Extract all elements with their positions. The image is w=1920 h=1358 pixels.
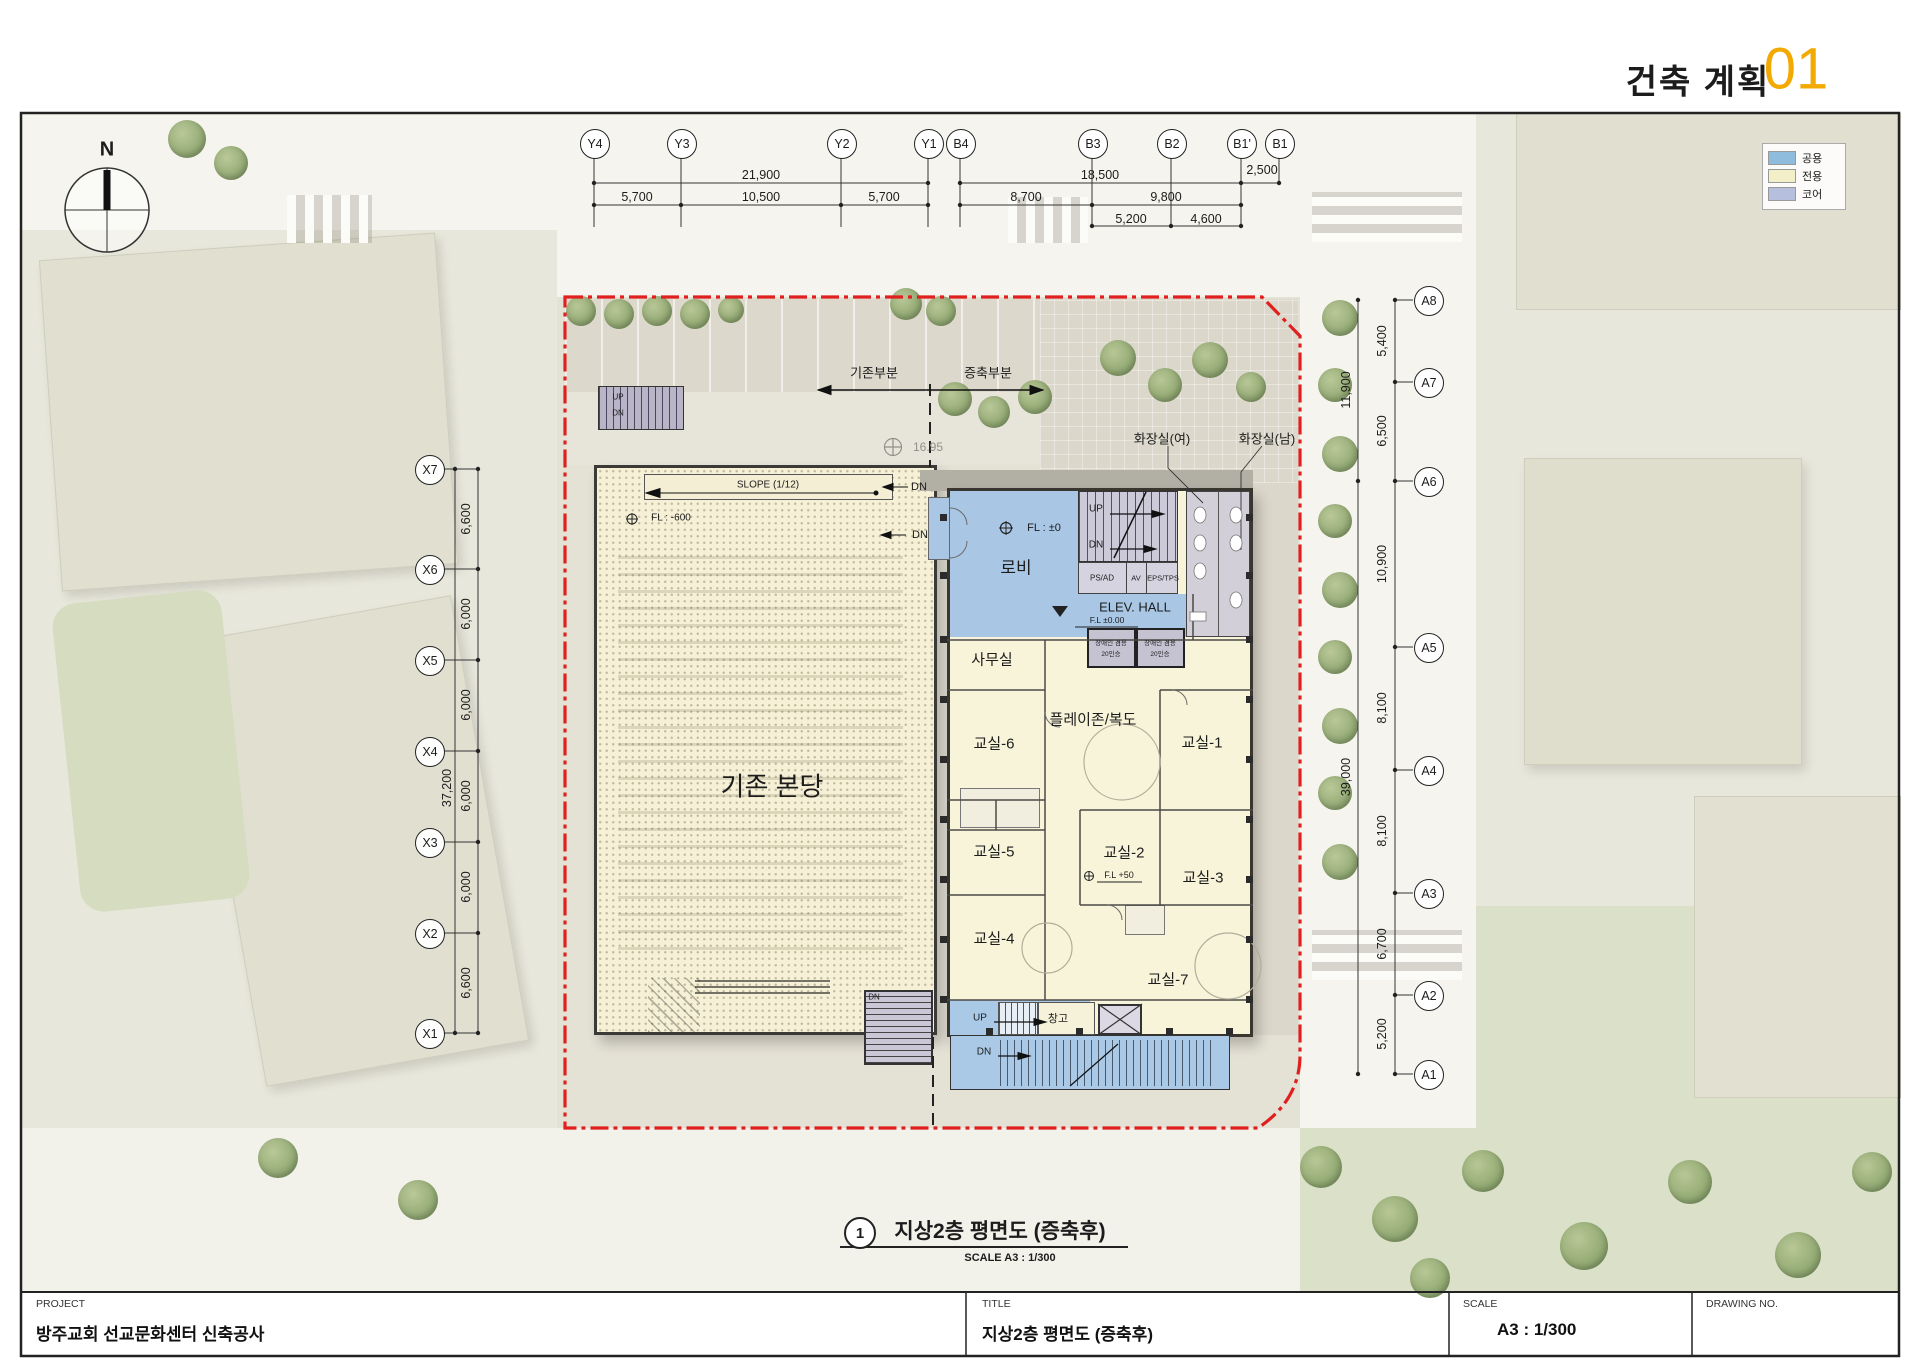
elevator-label: 장애인 겸용 — [1095, 637, 1127, 647]
toilet-fixtures — [1190, 507, 1242, 621]
page-title: 건축 계획 — [1626, 55, 1771, 104]
dim-text: 6,000 — [459, 598, 473, 629]
dim-text: 8,700 — [1010, 190, 1041, 204]
room-label-toilet-men: 화장실(남) — [1239, 429, 1296, 448]
grid-bubble-a8: A8 — [1414, 286, 1444, 316]
room-label-playzone: 플레이존/복도 — [1050, 709, 1137, 730]
room-label-lobby: 로비 — [1000, 554, 1031, 579]
grid-bubble-x4: X4 — [415, 737, 445, 767]
legend-row: 코어 — [1768, 186, 1840, 202]
up-note: UP — [973, 1013, 987, 1024]
grid-bubble-a1: A1 — [1414, 1060, 1444, 1090]
dn-note: DN — [912, 529, 928, 541]
grid-bubble-x3: X3 — [415, 828, 445, 858]
room-label-class3: 교실-3 — [1183, 867, 1224, 888]
room-label-av: AV — [1131, 574, 1140, 583]
legend-swatch-core — [1768, 187, 1796, 201]
titleblock-scale-label: SCALE — [1463, 1298, 1497, 1310]
room-label-eps-tps: EPS/TPS — [1147, 574, 1179, 583]
room-label-class1: 교실-1 — [1182, 732, 1223, 753]
grid-bubble-y2: Y2 — [827, 129, 857, 159]
slope-arrow — [646, 484, 908, 539]
grid-bubble-a4: A4 — [1414, 756, 1444, 786]
grid-bubble-b1p: B1' — [1227, 129, 1257, 159]
legend-label: 전용 — [1802, 168, 1822, 184]
fl-plus50-note: F.L +50 — [1104, 870, 1133, 880]
fl-zero-note: FL : ±0 — [1027, 522, 1061, 534]
spot-level-note: 16.95 — [913, 440, 943, 454]
legend-swatch-private — [1768, 169, 1796, 183]
room-label-storage: 창고 — [1048, 1010, 1068, 1026]
room-label-elev-hall: ELEV. HALL — [1099, 600, 1171, 615]
dim-text: 5,200 — [1115, 212, 1146, 226]
room-label-class6: 교실-6 — [974, 733, 1015, 754]
dim-text: 4,600 — [1190, 212, 1221, 226]
dim-text: 6,000 — [459, 689, 473, 720]
dim-text: 6,000 — [459, 780, 473, 811]
grid-bubble-a6: A6 — [1414, 467, 1444, 497]
grid-bubble-y4: Y4 — [580, 129, 610, 159]
north-label: N — [100, 139, 114, 162]
grid-bubble-x6: X6 — [415, 555, 445, 585]
grid-bubble-b2: B2 — [1157, 129, 1187, 159]
dim-text-total: 37,200 — [440, 769, 454, 807]
drawing-number: 1 — [856, 1225, 864, 1242]
drawing-scale: SCALE A3 : 1/300 — [964, 1252, 1055, 1264]
grid-bubble-x2: X2 — [415, 919, 445, 949]
room-label-class2: 교실-2 — [1104, 842, 1145, 863]
dim-text: 6,500 — [1375, 415, 1389, 446]
sheet-frame — [21, 113, 1899, 1356]
dim-text-total: 39,000 — [1339, 758, 1353, 796]
level-markers — [626, 438, 1142, 882]
grid-bubble-a7: A7 — [1414, 368, 1444, 398]
legend: 공용 전용 코어 — [1762, 143, 1846, 210]
titleblock-title-value: 지상2층 평면도 (증축후) — [982, 1320, 1153, 1345]
fl-existing-note: FL : -600 — [651, 513, 691, 524]
legend-row: 전용 — [1768, 168, 1840, 184]
room-label-ps-ad: PS/AD — [1090, 574, 1114, 583]
grid-bubble-y1: Y1 — [914, 129, 944, 159]
dim-text: 10,900 — [1375, 545, 1389, 583]
room-label-class4: 교실-4 — [974, 928, 1015, 949]
grid-bubble-x1: X1 — [415, 1019, 445, 1049]
up-note: UP — [1089, 504, 1103, 515]
grid-bubble-b4: B4 — [946, 129, 976, 159]
titleblock-title-label: TITLE — [982, 1298, 1011, 1310]
grid-bubble-b3: B3 — [1078, 129, 1108, 159]
room-label-class7: 교실-7 — [1148, 969, 1189, 990]
dim-text: 6,600 — [459, 503, 473, 534]
drawing-sheet: 건축 계획 01 공용 전용 코어 N Y4 Y3 Y2 Y1 B4 B3 B2… — [0, 0, 1920, 1358]
room-label-class5: 교실-5 — [974, 841, 1015, 862]
dn-note: DN — [1089, 540, 1103, 551]
dim-text: 6,000 — [459, 871, 473, 902]
grid-bubble-x7: X7 — [415, 455, 445, 485]
dim-text: 5,200 — [1375, 1018, 1389, 1049]
legend-swatch-public — [1768, 151, 1796, 165]
dn-note: DN — [868, 993, 880, 1002]
drawing-number-bubble: 1 — [844, 1217, 876, 1249]
dim-text: 21,900 — [742, 168, 780, 182]
titleblock-project-value: 방주교회 선교문화센터 신축공사 — [36, 1320, 264, 1345]
site-boundary-line — [565, 297, 1300, 1128]
room-label-sanctuary: 기존 본당 — [721, 767, 824, 804]
dim-text: 5,700 — [868, 190, 899, 204]
elevator-label: 20인승 — [1150, 648, 1169, 658]
grid-bubble-y3: Y3 — [667, 129, 697, 159]
dim-text: 8,100 — [1375, 815, 1389, 846]
titleblock-project-label: PROJECT — [36, 1298, 85, 1310]
dn-note: DN — [911, 481, 927, 493]
grid-bubble-a5: A5 — [1414, 633, 1444, 663]
titleblock-scale-value: A3 : 1/300 — [1497, 1320, 1576, 1340]
grid-bubble-x5: X5 — [415, 646, 445, 676]
dim-text: 6,700 — [1375, 928, 1389, 959]
grid-bubble-b1: B1 — [1265, 129, 1295, 159]
north-compass — [65, 168, 149, 252]
dim-text: 6,600 — [459, 967, 473, 998]
legend-label: 공용 — [1802, 150, 1822, 166]
up-note: UP — [612, 393, 623, 402]
toilet-leaders — [1168, 446, 1262, 550]
dim-text: 5,400 — [1375, 325, 1389, 356]
grid-bubble-a3: A3 — [1414, 879, 1444, 909]
dn-note: DN — [977, 1047, 991, 1058]
room-label-office: 사무실 — [971, 649, 1012, 670]
titleblock-drawingno-label: DRAWING NO. — [1706, 1298, 1778, 1310]
grid-bubble-a2: A2 — [1414, 981, 1444, 1011]
existing-extension-split-line — [930, 384, 933, 1128]
elevator-label: 20인승 — [1101, 648, 1120, 658]
dim-text: 10,500 — [742, 190, 780, 204]
shaft-x — [1098, 1004, 1142, 1035]
dim-text: 8,100 — [1375, 692, 1389, 723]
dn-note: DN — [612, 409, 624, 418]
column-markers — [940, 514, 1253, 1035]
extension-part-label: 증축부분 — [964, 363, 1012, 382]
drawing-title: 지상2층 평면도 (증축후) — [894, 1215, 1105, 1245]
page-number: 01 — [1764, 36, 1829, 103]
dim-text: 18,500 — [1081, 168, 1119, 182]
slope-note: SLOPE (1/12) — [737, 480, 799, 491]
dim-text-total: 11,900 — [1339, 371, 1353, 408]
dim-text: 5,700 — [621, 190, 652, 204]
fl-zero-hall-note: F.L ±0.00 — [1090, 615, 1125, 625]
dim-text: 2,500 — [1246, 163, 1277, 177]
existing-part-label: 기존부분 — [850, 363, 898, 382]
legend-label: 코어 — [1802, 186, 1822, 202]
room-label-toilet-women: 화장실(여) — [1134, 429, 1191, 448]
legend-row: 공용 — [1768, 150, 1840, 166]
left-dim-lines — [444, 469, 478, 1033]
dim-text: 9,800 — [1150, 190, 1181, 204]
elevator-label: 장애인 겸용 — [1144, 637, 1176, 647]
